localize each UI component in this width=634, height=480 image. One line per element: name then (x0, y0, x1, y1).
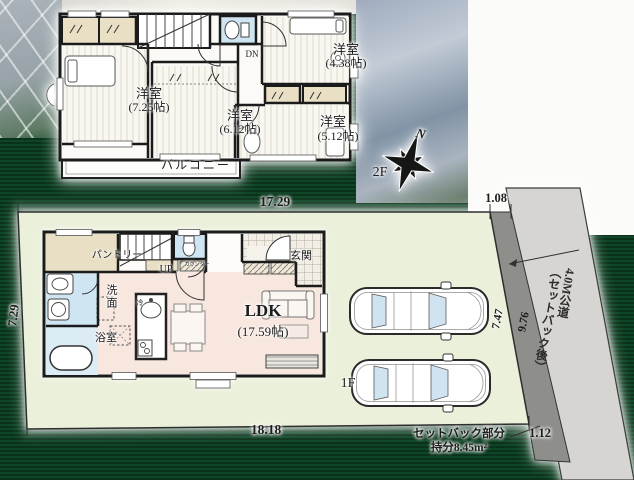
pantry-label: パントリー (92, 246, 143, 261)
room-size: (6.12帖) (220, 120, 261, 137)
fridge-label: 冷 (137, 298, 144, 308)
room-size: (7.25帖) (129, 98, 170, 115)
balcony-label: バルコニー (161, 156, 231, 173)
bathroom (46, 326, 98, 375)
floorplan-flyer: HOUSE (0, 0, 634, 480)
dim-top-width: 17.29 (260, 194, 290, 210)
ldk-size: (17.59帖) (238, 321, 289, 340)
ldk-label: LDK (245, 301, 282, 321)
dining-table (171, 304, 205, 351)
washroom-label: 洗面 (103, 284, 119, 310)
stairs-down (138, 14, 210, 48)
dim-bottom-setback: 1.12 (529, 426, 551, 441)
floor1-label: 1F (341, 376, 356, 392)
room-size: (4.38帖) (326, 54, 367, 71)
stairs-up-label: UP (160, 264, 173, 275)
entrance-label: 玄関 (290, 247, 312, 263)
car-icon (350, 282, 488, 340)
tv-board (266, 355, 318, 368)
washroom (46, 272, 98, 326)
room-size: (5.12帖) (318, 127, 359, 144)
toilet (220, 16, 256, 44)
dim-bottom-width: 18.18 (251, 422, 281, 438)
compass-icon (373, 123, 444, 200)
setback-note: セットバック部分 持分8.45m² (399, 428, 519, 456)
bath-label: 浴室 (95, 329, 117, 345)
counter-label: カウンター (184, 261, 209, 268)
floor2-label: 2F (373, 165, 388, 181)
stairs-down-label: DN (246, 49, 259, 59)
toilet (174, 234, 206, 259)
car-icon (352, 354, 490, 412)
dim-top-setback: 1.08 (485, 191, 507, 206)
